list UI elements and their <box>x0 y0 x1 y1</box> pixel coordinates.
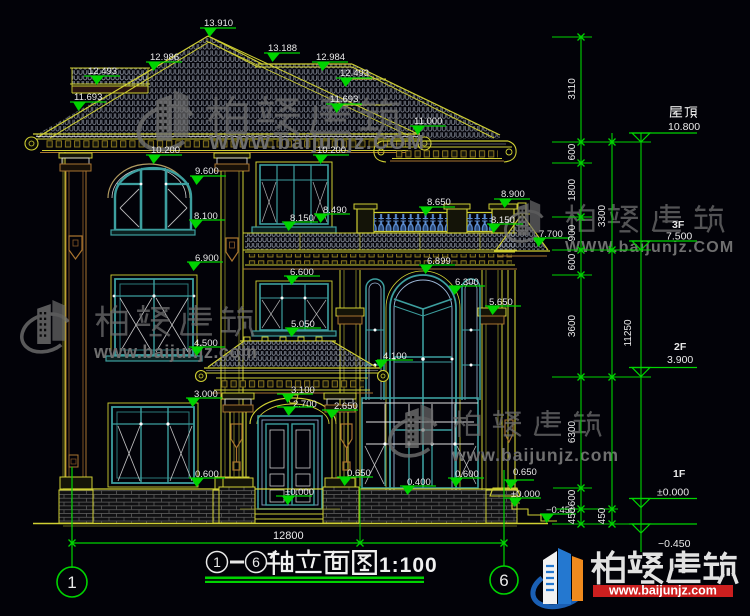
svg-text:8.650: 8.650 <box>427 197 451 208</box>
svg-text:1: 1 <box>67 573 76 592</box>
svg-text:600: 600 <box>567 489 578 506</box>
svg-text:12.493: 12.493 <box>340 68 369 79</box>
svg-text:3300: 3300 <box>597 204 608 227</box>
svg-text:450: 450 <box>597 507 608 524</box>
svg-text:0.650: 0.650 <box>513 467 537 478</box>
svg-text:12.986: 12.986 <box>150 52 179 63</box>
svg-text:12.493: 12.493 <box>88 66 117 77</box>
svg-text:10.800: 10.800 <box>668 121 700 133</box>
svg-text:11.000: 11.000 <box>414 116 442 127</box>
svg-text:12.984: 12.984 <box>316 52 345 63</box>
svg-text:3110: 3110 <box>567 78 578 100</box>
svg-text:2F: 2F <box>674 341 687 353</box>
svg-text:8.900: 8.900 <box>501 189 525 200</box>
svg-text:450: 450 <box>567 507 578 524</box>
svg-text:1F: 1F <box>673 468 686 480</box>
svg-text:6: 6 <box>499 571 508 590</box>
svg-text:www.baijunjz.com: www.baijunjz.com <box>451 445 619 465</box>
svg-text:−0.450: −0.450 <box>658 538 691 550</box>
svg-text:600: 600 <box>567 143 578 160</box>
svg-text:6: 6 <box>252 554 260 570</box>
svg-text:1:100: 1:100 <box>379 554 438 577</box>
svg-text:10.200: 10.200 <box>317 145 346 156</box>
svg-text:3600: 3600 <box>567 314 578 337</box>
svg-text:www.baijunjz.com: www.baijunjz.com <box>608 584 717 598</box>
svg-text:12800: 12800 <box>273 530 304 542</box>
svg-text:1800: 1800 <box>567 178 578 201</box>
svg-text:9.600: 9.600 <box>195 166 219 177</box>
svg-text:6300: 6300 <box>567 420 578 443</box>
svg-text:www.baijunjz.com: www.baijunjz.com <box>93 342 257 362</box>
svg-text:900: 900 <box>567 224 578 241</box>
svg-text:2.700: 2.700 <box>293 399 317 410</box>
svg-text:11250: 11250 <box>623 319 634 347</box>
svg-text:600: 600 <box>567 253 578 270</box>
svg-text:13.188: 13.188 <box>268 43 297 54</box>
svg-text:±0.000: ±0.000 <box>657 487 689 499</box>
svg-text:3.900: 3.900 <box>667 354 693 366</box>
svg-text:1: 1 <box>213 554 221 570</box>
svg-text:7.500: 7.500 <box>666 231 692 243</box>
svg-text:3F: 3F <box>672 219 685 231</box>
svg-text:10.200: 10.200 <box>151 145 180 156</box>
svg-text:13.910: 13.910 <box>204 18 233 29</box>
svg-text:11.693: 11.693 <box>330 94 358 105</box>
svg-text:11.693: 11.693 <box>74 92 102 103</box>
